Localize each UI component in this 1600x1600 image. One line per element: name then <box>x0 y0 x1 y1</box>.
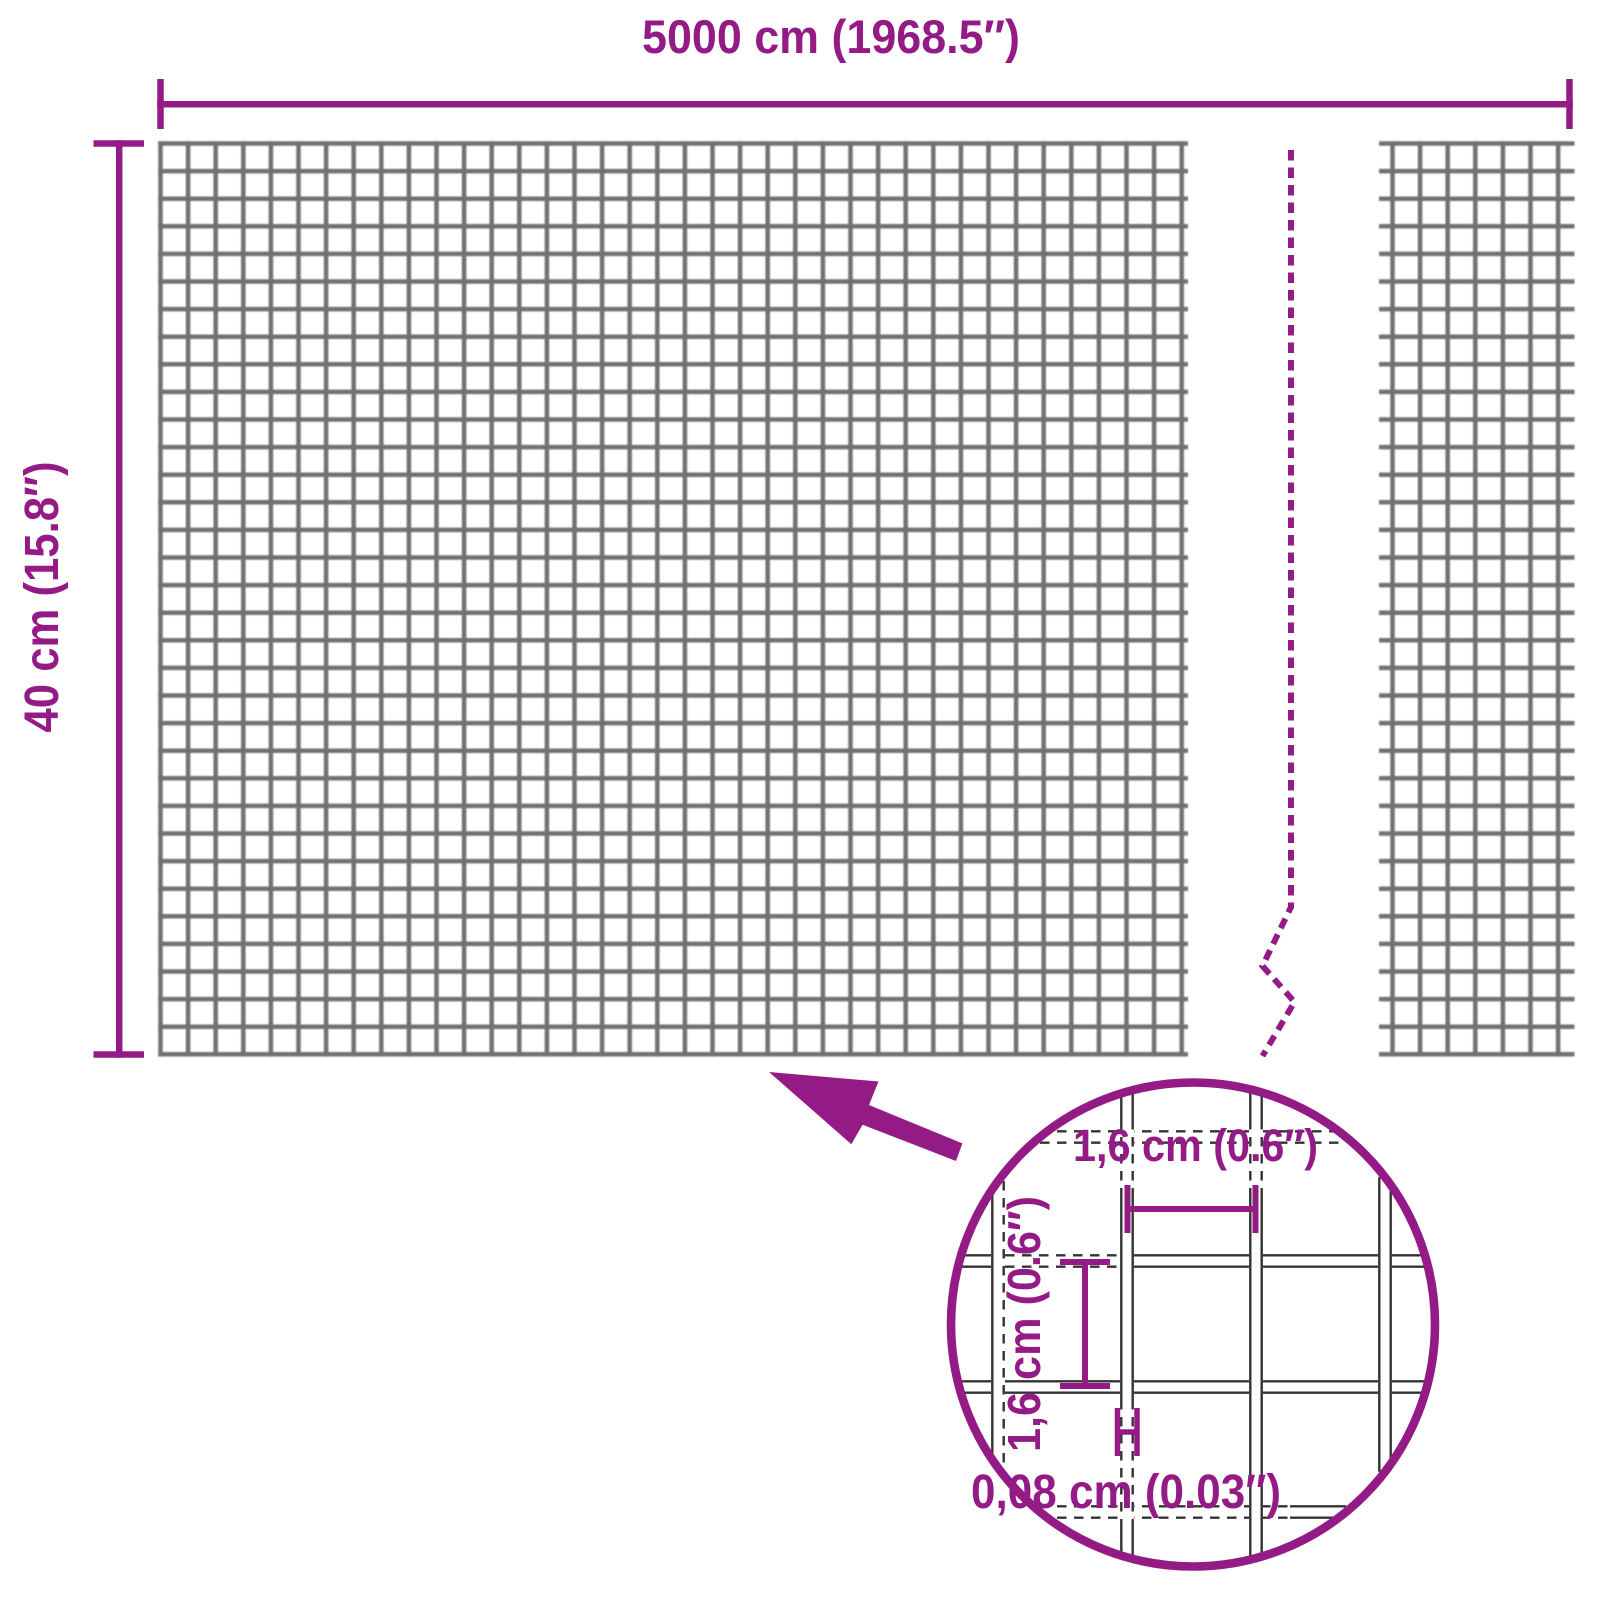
svg-text:1,6 cm (0.6″): 1,6 cm (0.6″) <box>1073 1120 1318 1171</box>
svg-text:5000 cm (1968.5″): 5000 cm (1968.5″) <box>642 10 1020 63</box>
svg-text:0,08 cm (0.03″): 0,08 cm (0.03″) <box>971 1466 1281 1519</box>
svg-text:1,6 cm (0.6″): 1,6 cm (0.6″) <box>998 1196 1050 1452</box>
svg-text:40 cm (15.8″): 40 cm (15.8″) <box>16 462 69 733</box>
